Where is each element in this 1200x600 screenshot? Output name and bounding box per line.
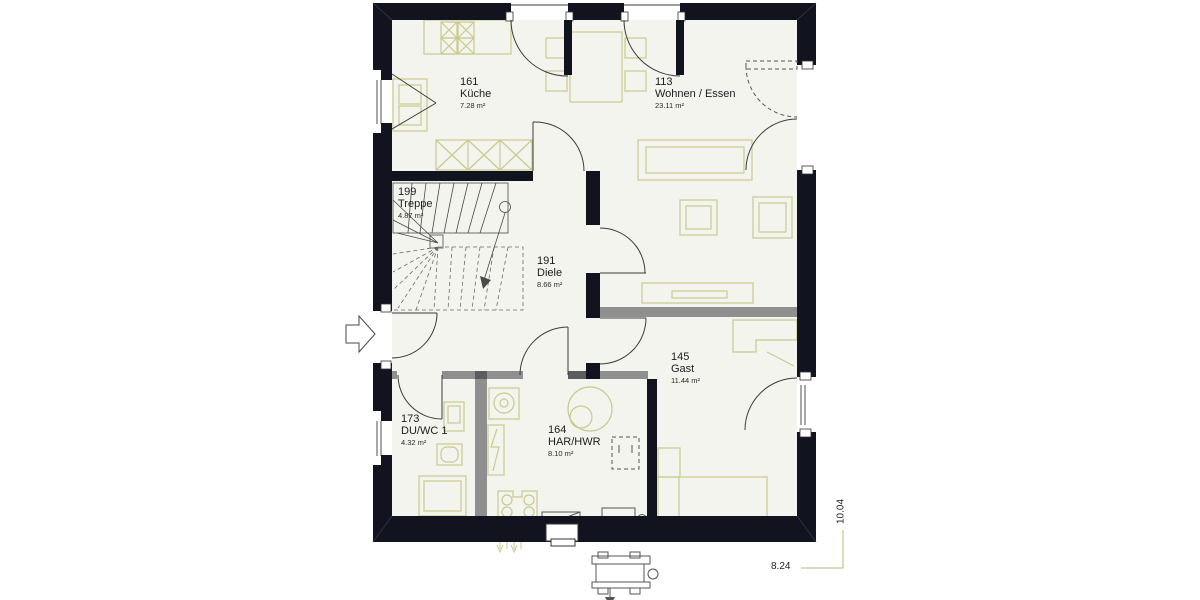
room-number: 191: [537, 255, 562, 267]
room-name: Treppe: [398, 198, 432, 211]
room-number: 199: [398, 186, 432, 198]
room-label-har-hwr: 164 HAR/HWR 8.10 m²: [548, 424, 601, 458]
room-name: Gast: [671, 363, 700, 376]
room-label-gast: 145 Gast 11.44 m²: [671, 351, 700, 385]
room-label-kueche: 161 Küche 7.28 m²: [460, 76, 491, 110]
room-area: 8.66 m²: [537, 280, 562, 289]
room-number: 145: [671, 351, 700, 363]
room-name: Küche: [460, 88, 491, 101]
room-number: 173: [401, 413, 447, 425]
dimension-depth-label: 10.04: [836, 495, 847, 529]
floor-plan-canvas: 161 Küche 7.28 m² 113 Wohnen / Essen 23.…: [0, 0, 1200, 600]
floor-area: [373, 3, 816, 540]
room-label-treppe: 199 Treppe 4.87 m²: [398, 186, 432, 220]
room-area: 8.10 m²: [548, 449, 601, 458]
car-icon: [592, 552, 658, 600]
room-name: DU/WC 1: [401, 425, 447, 438]
chimney: [546, 524, 578, 546]
room-number: 164: [548, 424, 601, 436]
room-area: 4.87 m²: [398, 211, 432, 220]
room-label-du-wc: 173 DU/WC 1 4.32 m²: [401, 413, 447, 447]
wc-window: [373, 411, 392, 465]
room-name: Diele: [537, 267, 562, 280]
room-label-wohnen-essen: 113 Wohnen / Essen 23.11 m²: [655, 76, 736, 110]
room-name: HAR/HWR: [548, 436, 601, 449]
room-label-diele: 191 Diele 8.66 m²: [537, 255, 562, 289]
room-area: 23.11 m²: [655, 101, 736, 110]
room-area: 7.28 m²: [460, 101, 491, 110]
room-number: 161: [460, 76, 491, 88]
dimension-width-label: 8.24: [771, 561, 790, 572]
room-name: Wohnen / Essen: [655, 88, 736, 101]
room-area: 4.32 m²: [401, 438, 447, 447]
entrance-arrow-icon: [346, 316, 375, 352]
room-area: 11.44 m²: [671, 376, 700, 385]
floor-plan-drawing: [0, 0, 1200, 600]
room-number: 113: [655, 76, 736, 88]
